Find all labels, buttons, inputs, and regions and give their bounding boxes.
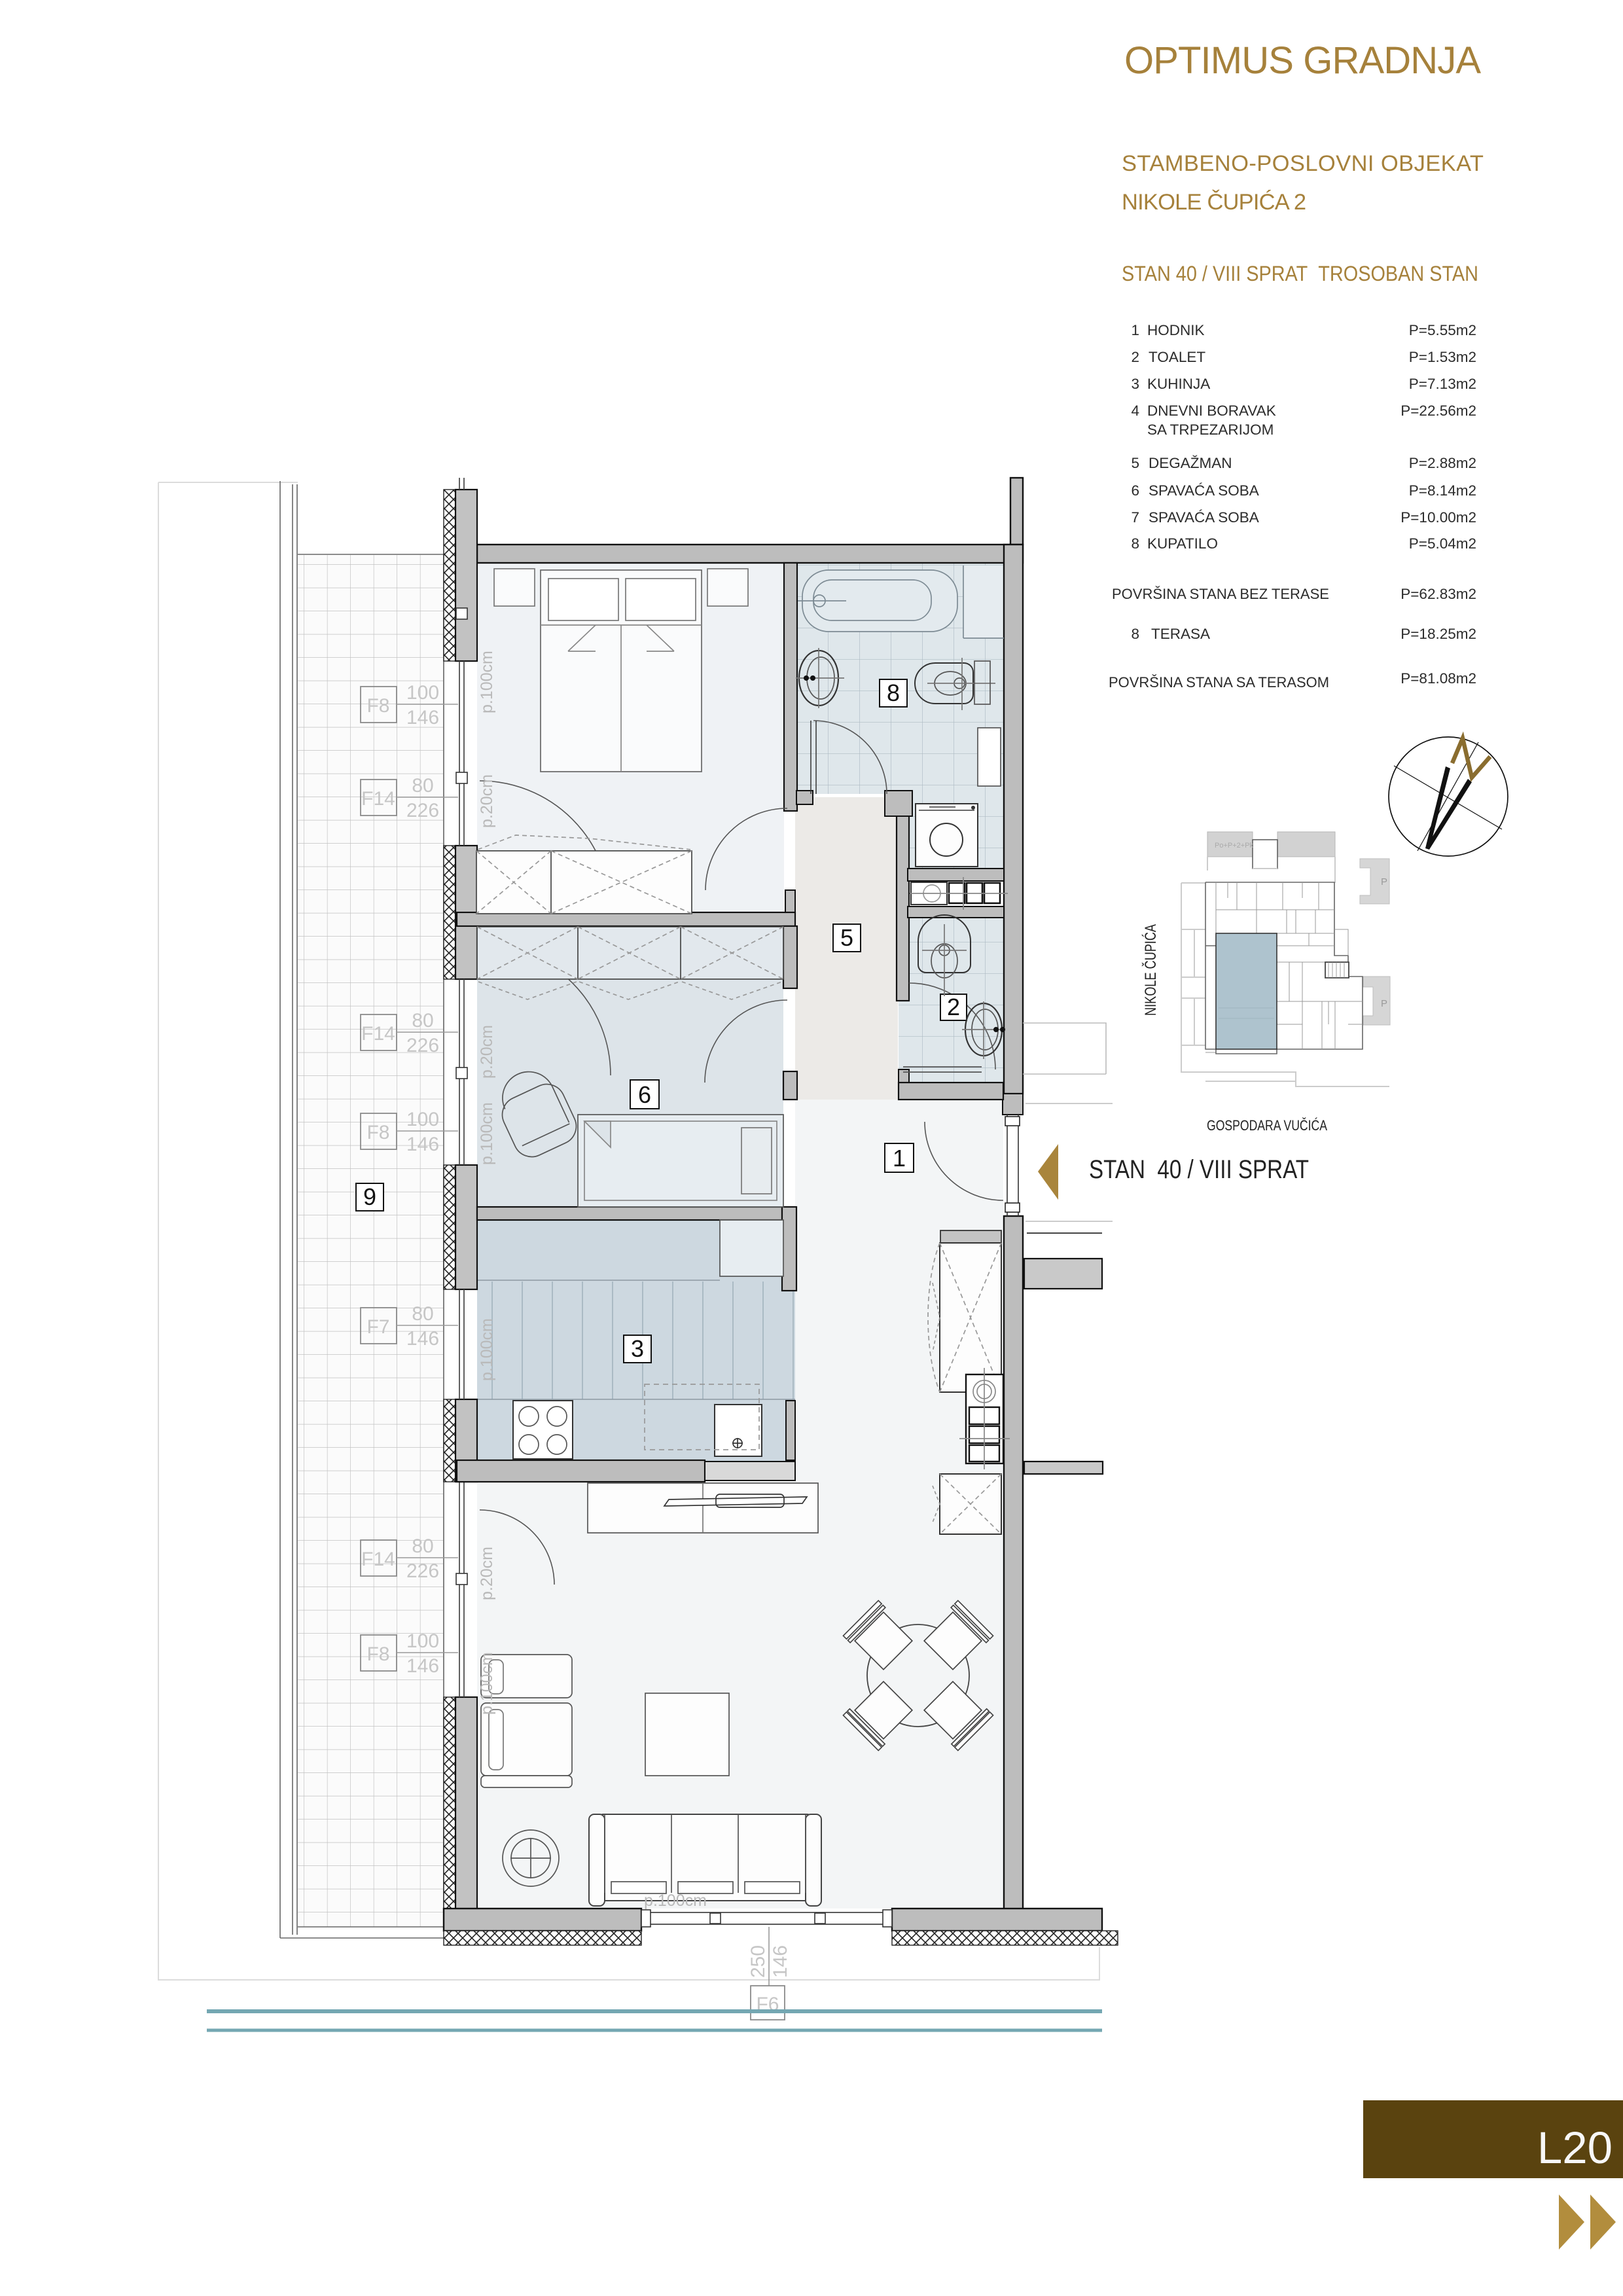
svg-text:F14: F14 xyxy=(361,1023,395,1045)
svg-text:100: 100 xyxy=(406,682,439,704)
svg-text:226: 226 xyxy=(406,1560,439,1582)
svg-text:9: 9 xyxy=(363,1183,376,1210)
svg-text:F14: F14 xyxy=(361,788,395,810)
svg-text:POVRŠINA STANA SA TERASOM: POVRŠINA STANA SA TERASOM xyxy=(1109,674,1329,691)
svg-text:146: 146 xyxy=(406,707,439,728)
svg-text:P=5.04m2: P=5.04m2 xyxy=(1409,535,1476,552)
svg-text:80: 80 xyxy=(412,1535,433,1557)
svg-text:F7: F7 xyxy=(366,1316,389,1338)
svg-text:SPAVAĆA SOBA: SPAVAĆA SOBA xyxy=(1149,509,1259,526)
svg-text:DNEVNI BORAVAK: DNEVNI BORAVAK xyxy=(1147,403,1276,419)
svg-text:L20: L20 xyxy=(1537,2123,1613,2173)
svg-text:1: 1 xyxy=(893,1145,906,1172)
svg-text:p.20cm: p.20cm xyxy=(478,1547,496,1600)
svg-text:2: 2 xyxy=(1131,349,1139,365)
svg-text:P=2.88m2: P=2.88m2 xyxy=(1409,455,1476,471)
svg-text:146: 146 xyxy=(770,1945,791,1978)
svg-text:STAN 40 / VIII SPRAT TROSOBAN: STAN 40 / VIII SPRAT TROSOBAN STAN xyxy=(1122,262,1478,285)
svg-text:3: 3 xyxy=(631,1335,644,1362)
svg-text:P=8.14m2: P=8.14m2 xyxy=(1409,482,1476,499)
svg-text:NIKOLE ČUPIĆA: NIKOLE ČUPIĆA xyxy=(1141,924,1160,1016)
svg-text:P=7.13m2: P=7.13m2 xyxy=(1409,376,1476,392)
svg-text:SPAVAĆA SOBA: SPAVAĆA SOBA xyxy=(1149,482,1259,499)
svg-text:TERASA: TERASA xyxy=(1151,626,1210,642)
svg-text:4: 4 xyxy=(1131,403,1139,419)
svg-text:P: P xyxy=(1381,998,1387,1009)
svg-text:2: 2 xyxy=(947,994,960,1020)
svg-text:8: 8 xyxy=(887,679,900,706)
svg-text:DEGAŽMAN: DEGAŽMAN xyxy=(1149,455,1232,471)
svg-text:P=18.25m2: P=18.25m2 xyxy=(1400,626,1476,642)
svg-text:3: 3 xyxy=(1131,376,1139,392)
svg-text:STAN 40 / VIII SPRAT: STAN 40 / VIII SPRAT xyxy=(1089,1155,1309,1184)
svg-text:100: 100 xyxy=(406,1630,439,1652)
svg-text:TOALET: TOALET xyxy=(1149,349,1205,365)
svg-text:80: 80 xyxy=(412,1010,433,1031)
svg-text:KUPATILO: KUPATILO xyxy=(1147,535,1218,552)
svg-text:F8: F8 xyxy=(366,695,389,717)
svg-text:250: 250 xyxy=(747,1945,769,1978)
svg-text:5: 5 xyxy=(1131,455,1139,471)
svg-text:OPTIMUS GRADNJA: OPTIMUS GRADNJA xyxy=(1124,39,1481,82)
svg-text:6: 6 xyxy=(638,1081,651,1108)
svg-text:Po+P+2+Pk: Po+P+2+Pk xyxy=(1215,842,1254,850)
svg-text:p.100cm: p.100cm xyxy=(478,1102,496,1165)
svg-text:80: 80 xyxy=(412,1303,433,1325)
svg-text:1: 1 xyxy=(1131,322,1139,338)
svg-text:NIKOLE ČUPIĆA 2: NIKOLE ČUPIĆA 2 xyxy=(1122,189,1306,215)
svg-text:P=62.83m2: P=62.83m2 xyxy=(1400,586,1476,602)
svg-text:P: P xyxy=(1381,876,1387,888)
svg-text:P=22.56m2: P=22.56m2 xyxy=(1400,403,1476,419)
svg-text:P=1.53m2: P=1.53m2 xyxy=(1409,349,1476,365)
svg-text:P=5.55m2: P=5.55m2 xyxy=(1409,322,1476,338)
svg-text:P=81.08m2: P=81.08m2 xyxy=(1400,670,1476,687)
svg-text:100: 100 xyxy=(406,1109,439,1130)
svg-text:HODNIK: HODNIK xyxy=(1147,322,1205,338)
svg-text:8: 8 xyxy=(1131,626,1139,642)
svg-text:F8: F8 xyxy=(366,1122,389,1143)
svg-text:p.100cm: p.100cm xyxy=(478,1652,496,1715)
svg-text:p.20cm: p.20cm xyxy=(478,774,496,828)
svg-text:p.20cm: p.20cm xyxy=(478,1025,496,1079)
svg-text:F14: F14 xyxy=(361,1549,395,1570)
svg-text:226: 226 xyxy=(406,800,439,821)
svg-text:p.100cm: p.100cm xyxy=(478,1318,496,1381)
svg-text:F8: F8 xyxy=(366,1643,389,1665)
svg-text:p.100cm: p.100cm xyxy=(644,1892,707,1910)
svg-text:146: 146 xyxy=(406,1655,439,1677)
svg-text:GOSPODARA VUČIĆA: GOSPODARA VUČIĆA xyxy=(1207,1117,1327,1134)
svg-text:146: 146 xyxy=(406,1328,439,1350)
svg-text:POVRŠINA STANA BEZ TERASE: POVRŠINA STANA BEZ TERASE xyxy=(1112,586,1329,602)
svg-text:STAMBENO-POSLOVNI OBJEKAT: STAMBENO-POSLOVNI OBJEKAT xyxy=(1122,151,1484,176)
svg-text:5: 5 xyxy=(840,924,853,951)
svg-text:p.100cm: p.100cm xyxy=(478,651,496,713)
svg-text:80: 80 xyxy=(412,775,433,797)
svg-text:SA TRPEZARIJOM: SA TRPEZARIJOM xyxy=(1147,422,1274,438)
svg-text:6: 6 xyxy=(1131,482,1139,499)
svg-text:8: 8 xyxy=(1131,535,1139,552)
svg-text:P=10.00m2: P=10.00m2 xyxy=(1400,509,1476,526)
svg-text:226: 226 xyxy=(406,1035,439,1056)
svg-text:146: 146 xyxy=(406,1134,439,1155)
svg-text:7: 7 xyxy=(1131,509,1139,526)
svg-text:KUHINJA: KUHINJA xyxy=(1147,376,1210,392)
